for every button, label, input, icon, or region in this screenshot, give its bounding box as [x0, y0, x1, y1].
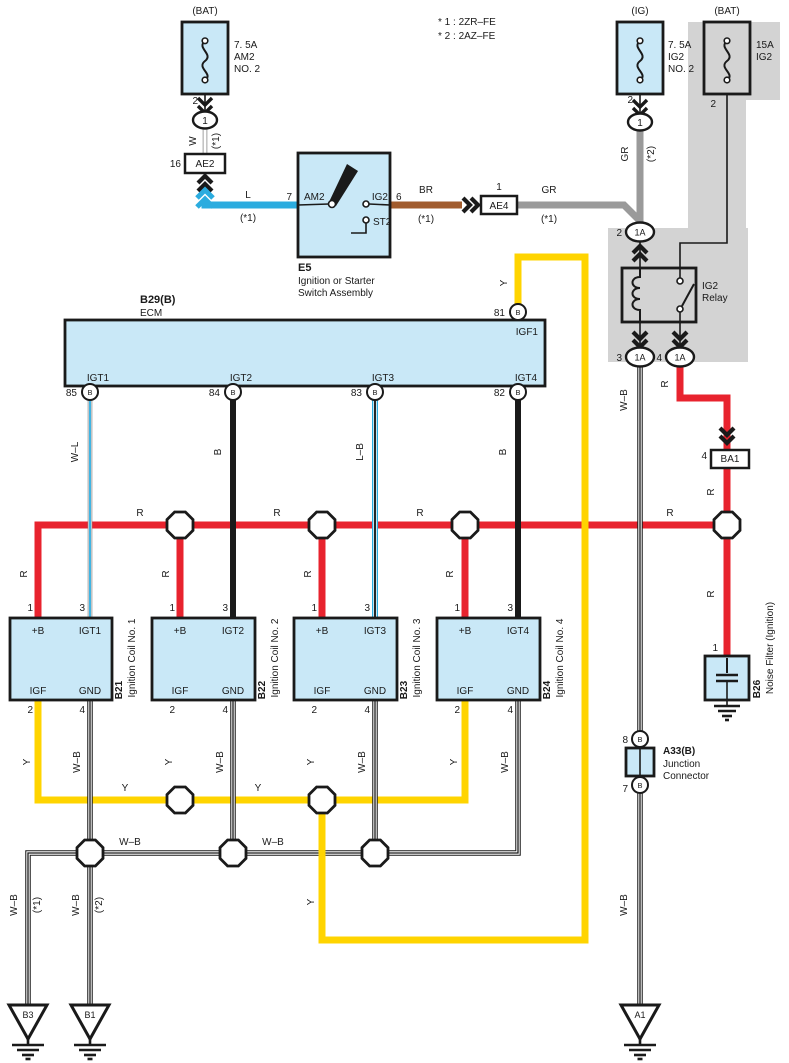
wire-label-r: R	[416, 508, 423, 519]
coil2-plusb: +B	[174, 626, 187, 637]
wire-note-star1: (*1)	[32, 897, 43, 913]
fuse-ig2-main-name: IG2	[756, 52, 773, 63]
arrow-right-icon	[463, 198, 478, 212]
coil4-pin2: 2	[454, 705, 460, 716]
a33-b: B	[637, 735, 642, 744]
coil1-name: Ignition Coil No. 1	[127, 618, 138, 697]
coil4-name: Ignition Coil No. 4	[555, 618, 566, 697]
ground-b1-label: B1	[84, 1010, 95, 1020]
ecm-pin-b: B	[230, 388, 235, 397]
coil3-pin2: 2	[311, 705, 317, 716]
wire-label-wb: W–B	[9, 894, 20, 916]
ground-b3-label: B3	[22, 1010, 33, 1020]
wire-label-wb: W–B	[71, 894, 82, 916]
noise-filter-id: B26	[752, 679, 763, 698]
wire-note-star2: (*2)	[94, 897, 105, 913]
wire-label-wb: W–B	[619, 894, 630, 916]
fuse-ig2-main-pin: 2	[710, 99, 716, 110]
wire-gr-ae4	[517, 205, 640, 228]
wire-red-relay-to-ba1	[680, 366, 727, 525]
fuse-ig2-rating: 7. 5A	[668, 40, 692, 51]
coil1-gnd: GND	[79, 686, 101, 697]
ecm-box	[65, 320, 545, 386]
wire-label-y: Y	[499, 279, 510, 286]
e5-ig2: IG2	[372, 192, 389, 203]
wire-label-wb: W–B	[357, 751, 368, 773]
ecm-pin-b: B	[372, 388, 377, 397]
ecm-pin-b: B	[87, 388, 92, 397]
noise-filter-pin: 1	[712, 643, 718, 654]
coil3-id: B23	[399, 680, 410, 699]
coil3-pin1: 1	[311, 603, 317, 614]
wire-label-y: Y	[306, 898, 317, 905]
labels: * 1 : 2ZR–FE * 2 : 2AZ–FE (BAT) 7. 5A AM…	[9, 6, 776, 1020]
e5-pin6: 6	[396, 192, 402, 203]
coil1-pin3: 3	[79, 603, 85, 614]
wire-label-r: R	[303, 570, 314, 577]
wire-label-w: W	[188, 136, 199, 146]
wire-label-y: Y	[22, 758, 33, 765]
coil4-id: B24	[542, 680, 553, 699]
fuse-ig2	[617, 22, 663, 94]
fuse-am2-name2: NO. 2	[234, 64, 261, 75]
ba1-pin: 4	[701, 451, 707, 462]
wire-label-y: Y	[306, 758, 317, 765]
coil4-plusb: +B	[459, 626, 472, 637]
e5-pin7: 7	[286, 192, 292, 203]
wire-label-y: Y	[122, 783, 129, 794]
e5-id: E5	[298, 262, 311, 274]
wire-note-star1: (*1)	[240, 213, 256, 224]
coil1-pin4: 4	[79, 705, 85, 716]
ecm-pin-b: B	[515, 388, 520, 397]
relay-pin2: 2	[616, 228, 622, 239]
ground-a1-label: A1	[634, 1010, 645, 1020]
wire-l-am2	[205, 200, 298, 205]
junction-connector	[626, 748, 654, 776]
relay-conn: 1A	[674, 353, 685, 363]
wire-label-wb: W–B	[500, 751, 511, 773]
wire-label-r: R	[706, 488, 717, 495]
fuse-am2-name: AM2	[234, 52, 255, 63]
ba1-label: BA1	[721, 454, 740, 465]
ae4-pin: 1	[496, 182, 502, 193]
a33-pin8: 8	[622, 735, 628, 746]
wire-label-wb: W–B	[119, 837, 141, 848]
a33-name-2: Connector	[663, 771, 710, 782]
coil1-igf: IGF	[30, 686, 47, 697]
noise-filter-name: Noise Filter (Ignition)	[765, 602, 776, 694]
coil3-pin3: 3	[364, 603, 370, 614]
e5-st2: ST2	[373, 217, 392, 228]
ecm-pin82: 82	[494, 388, 506, 399]
e5-name-2: Switch Assembly	[298, 288, 373, 299]
fuse-am2-conn: 1	[202, 116, 208, 127]
relay-pin3: 3	[616, 353, 622, 364]
wire-label-wb: W–B	[262, 837, 284, 848]
coil3-igt: IGT3	[364, 626, 387, 637]
fuse-ig2-main-rating: 15A	[756, 40, 774, 51]
fuse-am2	[182, 22, 228, 94]
coil2-id: B22	[257, 680, 268, 699]
coil2-igf: IGF	[172, 686, 189, 697]
a33-name-1: Junction	[663, 759, 700, 770]
coil4-pin1: 1	[454, 603, 460, 614]
fuse-ig2-bus: (IG)	[631, 6, 648, 17]
coil2-pin3: 3	[222, 603, 228, 614]
note-engine-1: * 1 : 2ZR–FE	[438, 17, 496, 28]
coil1-plusb: +B	[32, 626, 45, 637]
wire-red-bus	[38, 525, 727, 618]
ecm-name: ECM	[140, 308, 162, 319]
ecm-pin83: 83	[351, 388, 363, 399]
coil2-igt: IGT2	[222, 626, 245, 637]
e5-am2: AM2	[304, 192, 325, 203]
ecm-pin81-b: B	[515, 308, 520, 317]
ecm-igt3: IGT3	[372, 373, 395, 384]
wire-label-b: B	[498, 448, 509, 455]
coil2-pin4: 4	[222, 705, 228, 716]
am2-contact	[329, 201, 336, 208]
wire-note-star2: (*2)	[646, 146, 657, 162]
st2-contact	[363, 217, 369, 223]
ignition-switch	[298, 153, 390, 257]
wire-note-star1: (*1)	[418, 214, 434, 225]
a33-pin7: 7	[622, 784, 628, 795]
coil2-pin2: 2	[169, 705, 175, 716]
fuse-ig2-name2: NO. 2	[668, 64, 695, 75]
coil3-pin4: 4	[364, 705, 370, 716]
wire-label-wb: W–B	[72, 751, 83, 773]
coil1-pin1: 1	[27, 603, 33, 614]
fuse-ig2-pin: 2	[627, 95, 633, 106]
relay-conn: 1A	[634, 228, 645, 238]
wire-label-r: R	[666, 508, 673, 519]
relay-pin4: 4	[656, 353, 662, 364]
wire-label-r: R	[660, 380, 671, 387]
fuse-ig2-main-bus: (BAT)	[714, 6, 739, 17]
wire-label-y: Y	[164, 758, 175, 765]
a33-id: A33(B)	[663, 746, 695, 757]
coil3-plusb: +B	[316, 626, 329, 637]
wire-label-wl: W–L	[70, 441, 81, 462]
relay-name-2: Relay	[702, 293, 728, 304]
wire-label-wb: W–B	[215, 751, 226, 773]
wire-label-br: BR	[419, 185, 433, 196]
ae2-label: AE2	[196, 159, 215, 170]
coil3-name: Ignition Coil No. 3	[412, 618, 423, 697]
coil1-pin2: 2	[27, 705, 33, 716]
ecm-pin85: 85	[66, 388, 78, 399]
ecm-igt4: IGT4	[515, 373, 538, 384]
wire-label-r: R	[706, 590, 717, 597]
wire-label-y: Y	[449, 758, 460, 765]
fuse-am2-bus: (BAT)	[192, 6, 217, 17]
ae2-pin: 16	[170, 159, 182, 170]
ecm-igf1: IGF1	[516, 327, 539, 338]
relay-name-1: IG2	[702, 281, 719, 292]
wire-label-r: R	[273, 508, 280, 519]
wire-label-r: R	[19, 570, 30, 577]
coil4-igf: IGF	[457, 686, 474, 697]
noise-filter	[705, 656, 749, 720]
wire-label-gr: GR	[542, 185, 557, 196]
coil3-gnd: GND	[364, 686, 386, 697]
coil4-gnd: GND	[507, 686, 529, 697]
diagram-canvas: * 1 : 2ZR–FE * 2 : 2AZ–FE (BAT) 7. 5A AM…	[0, 0, 789, 1063]
ecm-id: B29(B)	[140, 294, 176, 306]
ecm-pin84: 84	[209, 388, 221, 399]
coil2-name: Ignition Coil No. 2	[270, 618, 281, 697]
ecm-igt2: IGT2	[230, 373, 253, 384]
wire-label-y: Y	[255, 783, 262, 794]
coil4-igt: IGT4	[507, 626, 530, 637]
note-engine-2: * 2 : 2AZ–FE	[438, 31, 496, 42]
wire-yellow-bus	[38, 700, 465, 800]
e5-name-1: Ignition or Starter	[298, 276, 375, 287]
wiring-diagram: * 1 : 2ZR–FE * 2 : 2AZ–FE (BAT) 7. 5A AM…	[0, 0, 789, 1063]
a33-b: B	[637, 781, 642, 790]
wire-label-r: R	[445, 570, 456, 577]
fuse-am2-pin: 2	[192, 96, 198, 107]
coil4-pin3: 3	[507, 603, 513, 614]
wire-note-star1: (*1)	[211, 133, 222, 149]
coil2-pin1: 1	[169, 603, 175, 614]
wire-label-r: R	[136, 508, 143, 519]
ae4-label: AE4	[490, 201, 509, 212]
coil1-id: B21	[114, 680, 125, 699]
wire-label-wb: W–B	[619, 389, 630, 411]
fuse-ig2-conn: 1	[637, 118, 643, 129]
wire-label-gr: GR	[620, 147, 631, 162]
coil3-igf: IGF	[314, 686, 331, 697]
wire-label-r: R	[161, 570, 172, 577]
ecm-igt1: IGT1	[87, 373, 110, 384]
coil2-gnd: GND	[222, 686, 244, 697]
coil4-pin4: 4	[507, 705, 513, 716]
ig2-relay	[622, 268, 696, 322]
coil1-igt: IGT1	[79, 626, 102, 637]
ecm-pin81: 81	[494, 308, 506, 319]
wire-label-b: B	[213, 448, 224, 455]
relay-conn: 1A	[634, 353, 645, 363]
wire-note-star1: (*1)	[541, 214, 557, 225]
fuse-ig2-name: IG2	[668, 52, 685, 63]
fuse-am2-rating: 7. 5A	[234, 40, 258, 51]
wire-label-lb: L–B	[355, 443, 366, 461]
ig2-contact	[363, 201, 369, 207]
fuse-ig2-main	[704, 22, 750, 94]
wire-label-l: L	[245, 190, 251, 201]
